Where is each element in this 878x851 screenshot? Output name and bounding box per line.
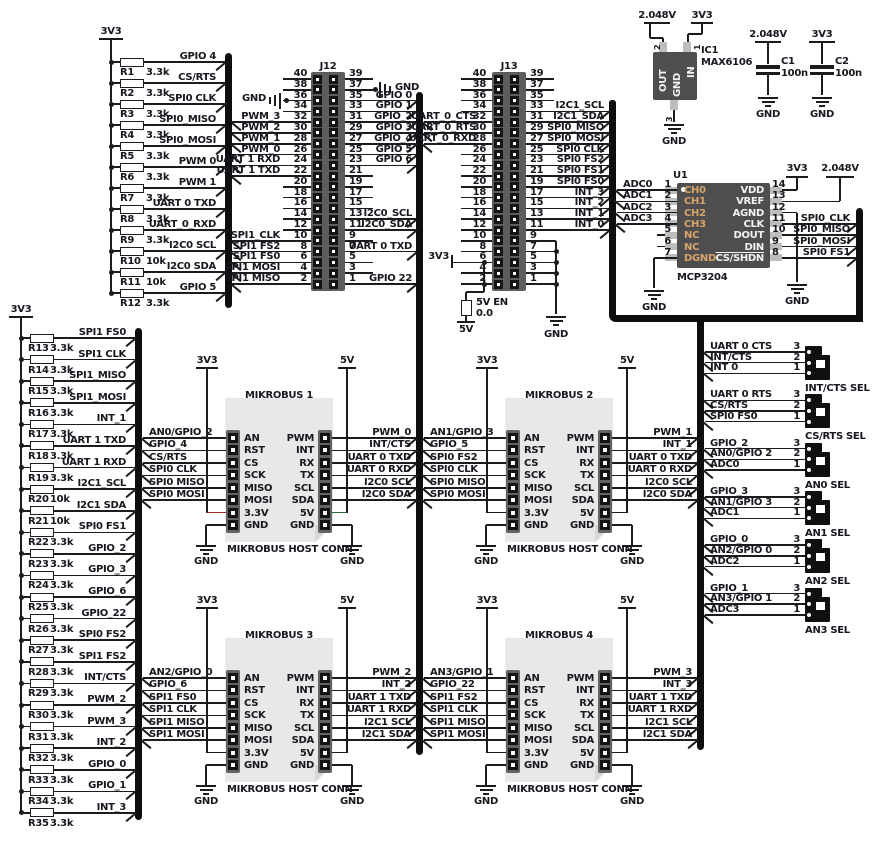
part-number: MCP3204 [677, 272, 727, 283]
net-label: GPIO 3 [376, 122, 412, 133]
ground-symbol [553, 324, 559, 326]
resistor [30, 355, 54, 364]
wire [821, 75, 823, 95]
header-pin-center [316, 196, 319, 199]
pin-name: SCK [244, 710, 265, 721]
ground-label: GND [756, 109, 780, 120]
pin-name: GND [672, 73, 683, 97]
wire [767, 43, 769, 64]
pin-number: 37 [530, 79, 543, 90]
ground-label: GND [194, 796, 218, 807]
net-label: INT/CTS [369, 439, 411, 450]
pin-number: 36 [294, 90, 307, 101]
ground-label: GND [340, 556, 364, 567]
resistor [30, 593, 54, 602]
ground-symbol [648, 294, 661, 296]
ground-symbol [200, 549, 213, 551]
mikrobus-block [505, 398, 613, 542]
pin-number: 24 [473, 154, 486, 165]
resistor-ref: R26 [28, 624, 49, 635]
mikrobus-pin-center [231, 688, 235, 692]
mikrobus-pin-center [323, 461, 327, 465]
pin-name: INT [296, 445, 314, 456]
resistor [461, 300, 472, 316]
net-label: INT 0 [710, 362, 738, 373]
net-label: SPI0_MOSI [159, 135, 216, 146]
pin-number: 34 [473, 100, 486, 111]
junction-dot [109, 207, 114, 212]
pin-name: MISO [244, 723, 272, 734]
pin-name: CH1 [684, 196, 706, 207]
ic-pad [670, 100, 678, 110]
resistor-value: 3.3k [146, 88, 169, 99]
pin-name: TX [300, 470, 314, 481]
net-label: GPIO_0 [88, 759, 126, 770]
net-label: UART 0 RXD [628, 464, 692, 475]
net-label: SPI0 FS0 [557, 176, 604, 187]
net-label: GPIO_5 [430, 439, 468, 450]
jumper-pin [807, 592, 811, 596]
mikrobus-pin-center [603, 763, 607, 767]
pin-number: 23 [349, 154, 362, 165]
pin-name: RST [524, 445, 545, 456]
mikrobus-pin-center [603, 701, 607, 705]
power-net-label: 3V3 [197, 595, 218, 606]
pin-name: MOSI [244, 735, 272, 746]
pin-name: 5V [580, 748, 594, 759]
pin-number: 16 [473, 197, 486, 208]
resistor-ref: R8 [120, 214, 134, 225]
resistor-ref: R10 [120, 256, 141, 267]
net-label: GPIO 22 [369, 273, 412, 284]
resistor [30, 636, 54, 645]
power-net-label: 2.048V [638, 10, 676, 21]
pin-number: 22 [473, 165, 486, 176]
wire [796, 178, 798, 190]
net-label: PWM_2 [241, 122, 280, 133]
pin-name: PWM [287, 433, 314, 444]
pin-name: SDA [292, 495, 314, 506]
jumper-pin [807, 613, 811, 617]
net-label: INT_3 [97, 802, 126, 813]
net-label: AN3/GPIO 1 [710, 593, 772, 604]
net-label: UART 1 TXD [217, 165, 280, 176]
wire [332, 512, 347, 514]
pin-number: 1 [793, 362, 800, 373]
mikrobus-pin-center [603, 676, 607, 680]
resistor [120, 79, 144, 88]
pin-number: 15 [349, 197, 362, 208]
pin-name: VREF [736, 196, 764, 207]
power-net-label: 5V [340, 595, 354, 606]
ground-symbol [546, 316, 566, 318]
pin-name: TX [580, 470, 594, 481]
wire [612, 512, 627, 514]
pin-number: 18 [473, 187, 486, 198]
pin-name: CS [244, 698, 258, 709]
wire [205, 525, 207, 545]
header-pin-center [332, 239, 335, 242]
resistor-ref: R28 [28, 667, 49, 678]
header-pin-center [497, 131, 500, 134]
mikrobus-pin-center [231, 436, 235, 440]
resistor-value: 3.3k [50, 667, 73, 678]
resistor [30, 571, 54, 580]
jumper-pin [807, 409, 811, 413]
pin-number: 11 [530, 219, 543, 230]
net-label: GPIO 5 [180, 282, 216, 293]
pin-name: NC [684, 230, 699, 241]
pin-number: 2 [654, 45, 662, 50]
net-label: SPI1 FS2 [233, 241, 280, 252]
ground-symbol [203, 793, 209, 795]
net-label: SPI1 MISO [225, 273, 280, 284]
resistor [120, 247, 144, 256]
resistor-value: 3.3k [50, 343, 73, 354]
pin-number: 15 [530, 197, 543, 208]
header-pin-center [513, 99, 516, 102]
net-label: ADC1 [710, 507, 739, 518]
mikrobus-pin-center [323, 701, 327, 705]
wire [612, 752, 627, 754]
wire [486, 764, 506, 766]
junction-dot [19, 724, 24, 729]
pin-name: RX [299, 458, 314, 469]
pin-number: 9 [530, 230, 537, 241]
wire [631, 525, 633, 545]
wire [650, 37, 663, 39]
resistor [30, 679, 54, 688]
resistor [30, 722, 54, 731]
net-label: I2C0_SCL [364, 208, 413, 219]
net-label: PWM_1 [653, 427, 692, 438]
net-label: PWM_2 [87, 694, 126, 705]
resistor [30, 701, 54, 710]
pin-name: DGND [684, 253, 716, 264]
pin-name: SCK [524, 470, 545, 481]
net-label: PWM_2 [372, 667, 411, 678]
resistor [30, 808, 54, 817]
junction-dot [19, 400, 24, 405]
resistor-value: 10k [50, 516, 70, 527]
pin-name: GND [570, 760, 594, 771]
header-pin-center [332, 99, 335, 102]
mikrobus-pin-center [323, 726, 327, 730]
pin-number: 22 [294, 165, 307, 176]
wire [206, 609, 208, 753]
net-label: UART 0 TXD [349, 241, 412, 252]
mikrobus-pin-center [603, 713, 607, 717]
pin-number: 9 [772, 236, 779, 247]
resistor-ref: R4 [120, 130, 134, 141]
wire [767, 75, 769, 95]
pin-name: SCL [574, 723, 594, 734]
net-label: INT_0 [575, 219, 604, 230]
mikrobus-pin-center [323, 523, 327, 527]
junction-dot [19, 551, 24, 556]
header-pin-center [513, 185, 516, 188]
net-label: INT_2 [382, 679, 411, 690]
net-label: UART_0_RTS [411, 122, 476, 133]
selector-label: CS/RTS SEL [805, 431, 866, 442]
header-pin-center [497, 78, 500, 81]
schematic-canvas: 3V3GPIO 4R13.3kCS/RTSR23.3kSPI0 CLKR33.3… [0, 0, 878, 851]
net-label: SPI0_MISO [793, 224, 850, 235]
net-label: GND [395, 82, 419, 93]
resistor-value: 3.3k [146, 298, 169, 309]
ground-label: GND [544, 329, 568, 340]
junction-dot [19, 573, 24, 578]
net-label: SPI0 CLK [168, 93, 216, 104]
pin-number: 24 [294, 154, 307, 165]
net-label: UART 1 TXD [629, 692, 692, 703]
pin-name: MOSI [524, 735, 552, 746]
net-label: SPI1 FS2 [430, 692, 477, 703]
pin-name: 5V [300, 748, 314, 759]
junction-dot [109, 165, 114, 170]
pin-name: CS [524, 458, 538, 469]
resistor-value: 3.3k [50, 818, 73, 829]
pin-number: 40 [294, 68, 307, 79]
resistor [30, 744, 54, 753]
resistor-ref: R11 [120, 277, 141, 288]
net-label: SPI1 FS2 [79, 651, 126, 662]
pin-number: 33 [530, 100, 543, 111]
pin-name: GND [524, 760, 548, 771]
resistor [120, 268, 144, 277]
net-label: SPI0 FS1 [557, 165, 604, 176]
wire [207, 512, 226, 514]
net-label: SPI1_MISO [69, 370, 126, 381]
resistor-value: 0.0 [476, 308, 493, 319]
pin-number: 3 [793, 534, 800, 545]
pin-name: GND [244, 760, 268, 771]
pin-name: GND [290, 760, 314, 771]
mikrobus-pin-center [511, 461, 515, 465]
junction-dot [109, 228, 114, 233]
header-pin-center [316, 261, 319, 264]
pin-name: DIN [745, 242, 765, 253]
net-label: GPIO 1 [376, 100, 412, 111]
junction-dot [109, 123, 114, 128]
net-label: SPI0 FS1 [803, 247, 850, 258]
pin-number: 28 [473, 133, 486, 144]
jumper-pin [807, 420, 811, 424]
mikrobus-pin-center [511, 726, 515, 730]
header-pin-center [497, 164, 500, 167]
net-label: SPI0 MISO [430, 477, 485, 488]
pin-name: MOSI [524, 495, 552, 506]
mikrobus-pin-center [231, 763, 235, 767]
resistor [120, 205, 144, 214]
net-label: GPIO 6 [376, 154, 412, 165]
net-label: GPIO_1 [88, 780, 126, 791]
junction-dot [19, 357, 24, 362]
power-net-label: 3V3 [692, 10, 713, 21]
net-label: ADC0 [710, 459, 739, 470]
pin-number: 21 [349, 165, 362, 176]
mikrobus-block [505, 638, 613, 782]
junction-dot [373, 87, 378, 92]
net-label: SPI1 CLK [430, 704, 478, 715]
pin-name: SCK [244, 470, 265, 481]
pin-number: 5 [349, 251, 356, 262]
mikrobus-pin-center [511, 688, 515, 692]
net-label: CS/RTS [178, 72, 216, 83]
pin-number: 19 [349, 176, 362, 187]
resistor-ref: R32 [28, 753, 49, 764]
net-label: GPIO_2 [374, 111, 412, 122]
mikrobus-caption: MIKROBUS HOST CONN [227, 784, 353, 795]
mikrobus-pin-center [323, 676, 327, 680]
header-pin-center [332, 196, 335, 199]
net-label: SPI0 FS2 [79, 629, 126, 640]
net-label: AN0/GPIO_2 [149, 427, 212, 438]
header-pin-center [513, 142, 516, 145]
pin-name: IN [686, 67, 697, 79]
mikrobus-caption: MIKROBUS HOST CONN [227, 544, 353, 555]
pin-name: 3.3V [524, 508, 548, 519]
power-net-label: 3V3 [812, 29, 833, 40]
jumper-pin [807, 447, 811, 451]
pin-number: 33 [349, 100, 362, 111]
power-net-label: 3V3 [197, 355, 218, 366]
header-pin-center [332, 283, 335, 286]
pin-name: INT [576, 685, 594, 696]
ground-symbol [758, 97, 778, 99]
mikrobus-pin-center [511, 486, 515, 490]
net-label: I2C0 SCL [169, 240, 216, 251]
resistor-value: 3.3k [146, 172, 169, 183]
part-ref: C1 [781, 56, 795, 67]
ground-symbol [644, 290, 664, 292]
ground-symbol [196, 785, 216, 787]
header-pin-center [332, 164, 335, 167]
wire [486, 524, 506, 526]
ground-symbol [480, 549, 493, 551]
pin-number: 26 [473, 144, 486, 155]
pin-number: 36 [473, 90, 486, 101]
resistor-ref: R24 [28, 580, 49, 591]
junction-dot [19, 789, 24, 794]
wire [483, 262, 485, 292]
junction-dot [19, 487, 24, 492]
jumper-pin [807, 468, 811, 472]
header-pin-center [497, 185, 500, 188]
mikrobus-pin-center [603, 751, 607, 755]
net-label: INT_2 [97, 737, 126, 748]
resistor [120, 142, 144, 151]
resistor-ref: 5V EN [476, 297, 508, 308]
mikrobus-pin-center [231, 676, 235, 680]
net-label: GPIO_0 [710, 534, 748, 545]
junction-dot [19, 379, 24, 384]
pin-number: 8 [772, 247, 779, 258]
resistor-value: 3.3k [146, 235, 169, 246]
net-label: I2C1 SCL [364, 717, 411, 728]
net-label: AN1/GPIO 3 [710, 497, 772, 508]
net-label: I2C1 SDA [643, 729, 692, 740]
junction-dot [19, 422, 24, 427]
net-label: SPI1 MISO [149, 717, 204, 728]
resistor-ref: R9 [120, 235, 134, 246]
net-label: INT/CTS [84, 672, 126, 683]
pin-number: 10 [473, 230, 486, 241]
net-label: SPI0 FS2 [557, 154, 604, 165]
pin-name: CH3 [684, 219, 706, 230]
mikrobus-pin-center [603, 738, 607, 742]
ground-symbol [196, 545, 216, 547]
ground-label: GND [785, 296, 809, 307]
resistor-value: 3.3k [50, 473, 73, 484]
pin-number: 21 [530, 165, 543, 176]
junction-dot [109, 81, 114, 86]
pin-name: SDA [292, 735, 314, 746]
net-label: SPI0_CLK [801, 213, 850, 224]
net-label: UART 1 TXD [348, 692, 411, 703]
pin-number: 1 [349, 273, 356, 284]
net-label: GPIO_6 [88, 586, 126, 597]
junction-dot [482, 260, 487, 265]
junction-dot [554, 249, 559, 254]
pin-number: 25 [530, 144, 543, 155]
mikrobus-pin-center [231, 498, 235, 502]
pin-number: 35 [530, 90, 543, 101]
ground-symbol [476, 785, 496, 787]
net-label: GPIO_1 [710, 583, 748, 594]
net-label: GPIO_3 [88, 564, 126, 575]
wire [351, 765, 353, 785]
selector-label: AN2 SEL [805, 576, 850, 587]
net-label: UART 1 RXD [628, 704, 692, 715]
net-label: PWM_3 [241, 111, 280, 122]
net-label: AN2/GPIO_0 [149, 667, 212, 678]
pin-name: RX [299, 698, 314, 709]
header-pin-center [316, 239, 319, 242]
pin-number: 34 [294, 100, 307, 111]
pin-number: 32 [294, 111, 307, 122]
pin-number: 20 [294, 176, 307, 187]
mikrobus-pin-center [231, 448, 235, 452]
pin-name: SDA [572, 495, 594, 506]
pin-number: 7 [530, 241, 537, 252]
ground-symbol [279, 93, 281, 109]
wire [487, 512, 506, 514]
ground-symbol [384, 84, 386, 95]
mikrobus-pin-center [603, 436, 607, 440]
ground-symbol [794, 292, 800, 294]
header-pin-center [316, 88, 319, 91]
ground-symbol [483, 793, 489, 795]
pin-name: RX [579, 458, 594, 469]
net-label: UART_0_CTS [411, 111, 476, 122]
resistor-ref: R27 [28, 645, 49, 656]
resistor-value: 3.3k [50, 775, 73, 786]
mikrobus-pin-center [323, 498, 327, 502]
pin-number: 11 [349, 219, 362, 230]
junction-dot [19, 703, 24, 708]
mikrobus-pin-center [511, 751, 515, 755]
resistor-ref: R15 [28, 386, 49, 397]
header-pin-center [513, 78, 516, 81]
header-pin-center [497, 153, 500, 156]
net-label: UART 1 RXD [216, 154, 280, 165]
ground-label: GND [662, 136, 686, 147]
junction-dot [19, 681, 24, 686]
pin-number: 10 [294, 230, 307, 241]
header-pin-center [316, 99, 319, 102]
header-pin-center [497, 142, 500, 145]
